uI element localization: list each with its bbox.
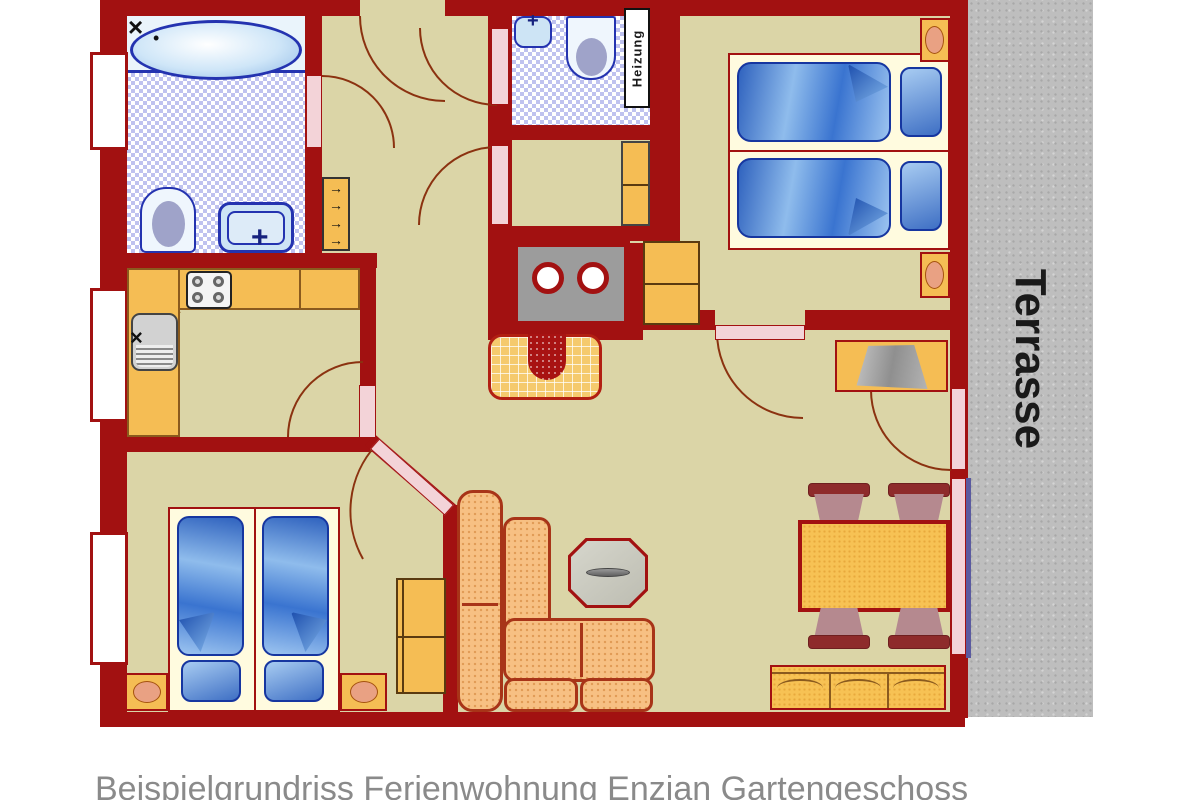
heater-box: Heizung	[624, 8, 650, 108]
sofa-front-cushion-right	[580, 678, 653, 712]
bed2-divider	[254, 509, 256, 710]
sideboard-divider	[829, 672, 831, 708]
wardrobe-shelf	[398, 636, 444, 638]
burner	[192, 276, 203, 287]
cabinet-mid	[643, 241, 700, 325]
bathtub-drain-icon: •	[153, 28, 159, 49]
chair-back	[808, 635, 870, 649]
nightstand-bed2-left	[125, 673, 168, 711]
sideboard-divider	[887, 672, 889, 708]
sideboard-door-arc	[777, 679, 823, 697]
bed1-divider	[730, 150, 948, 152]
heater-label: Heizung	[630, 29, 645, 87]
counter-divider	[299, 270, 301, 308]
tv-set	[855, 345, 929, 389]
sideboard	[770, 665, 946, 710]
cabinet-mid-shelf	[645, 283, 698, 285]
toilet-wc	[566, 16, 616, 80]
dining-table	[798, 520, 950, 612]
storage-cabinet	[621, 141, 650, 226]
coat-hook-icon: →	[329, 198, 343, 212]
bed2-pillow-right	[264, 660, 324, 702]
sofa-seat-seam	[580, 623, 583, 677]
sofa-front-cushion-left	[504, 678, 578, 712]
wardrobe-edge	[402, 580, 404, 692]
toilet-wc-seat	[576, 38, 607, 76]
nightstand-bed1-top	[920, 18, 950, 62]
floorplan-canvas: Terrasse × • + +	[0, 0, 1200, 800]
burner	[213, 276, 224, 287]
tv-desk	[835, 340, 948, 392]
door-storage	[491, 145, 509, 225]
toilet-seat	[152, 201, 185, 247]
bed1-mattress-top	[737, 62, 891, 142]
chair-seat	[812, 608, 866, 638]
window-terrace-frame	[966, 478, 971, 658]
nightstand-lamp	[350, 681, 378, 703]
burner-plate-right	[577, 262, 609, 294]
coat-hook-icon: →	[329, 216, 343, 230]
door-bathroom	[306, 75, 322, 148]
sideboard-top-edge	[772, 672, 944, 674]
wardrobe-bed2	[396, 578, 446, 694]
burner	[192, 292, 203, 303]
bathtub-faucet-icon: ×	[128, 12, 143, 43]
coat-hook-icon: →	[329, 181, 343, 195]
sink-wc: +	[514, 16, 552, 48]
storage-cabinet-shelf	[623, 184, 648, 186]
window-terrace	[951, 478, 966, 655]
bed2-mattress-left	[177, 516, 244, 656]
sink-bathroom: +	[218, 202, 294, 253]
hall-mat-arch	[528, 334, 566, 380]
door-wc	[491, 28, 509, 105]
bed1-mattress-bottom	[737, 158, 891, 238]
door-kitchen	[359, 385, 376, 438]
coffee-table-handle	[586, 568, 630, 577]
bed2-mattress-right	[262, 516, 329, 656]
sink-drainer	[136, 345, 173, 367]
nightstand-bed2-right	[340, 673, 387, 711]
sink-faucet-icon: +	[251, 221, 269, 255]
toilet-bathroom	[140, 187, 196, 253]
bed1-pillow-bottom	[900, 161, 942, 231]
nightstand-lamp	[925, 261, 944, 289]
caption: Beispielgrundriss Ferienwohnung Enzian G…	[95, 770, 968, 800]
nightstand-lamp	[133, 681, 161, 703]
chair-seat	[892, 608, 946, 638]
wc-sink-faucet-icon: +	[527, 10, 539, 33]
coat-rack: → → → →	[322, 177, 350, 251]
coffee-table	[568, 538, 648, 608]
nightstand-bed1-bottom	[920, 252, 950, 298]
door-terrace	[951, 388, 966, 470]
burner	[213, 292, 224, 303]
kitchen-sink: ×	[131, 313, 178, 371]
sideboard-door-arc	[835, 679, 881, 697]
coat-hook-icon: →	[329, 233, 343, 247]
chair-back	[888, 635, 950, 649]
nightstand-lamp	[925, 26, 944, 54]
hall-mat	[488, 334, 602, 400]
bed1-pillow-top	[900, 67, 942, 137]
burner-plate-left	[532, 262, 564, 294]
stove	[186, 271, 232, 309]
sofa-back-column	[457, 490, 503, 712]
bed2-pillow-left	[181, 660, 241, 702]
coat-hooks: → → → →	[324, 179, 348, 249]
door-bedroom1	[715, 325, 805, 340]
sideboard-door-arc	[893, 679, 939, 697]
sofa-long-seat	[503, 618, 655, 682]
appliance-niche	[512, 241, 630, 327]
sofa-cushion-seam	[462, 603, 498, 606]
